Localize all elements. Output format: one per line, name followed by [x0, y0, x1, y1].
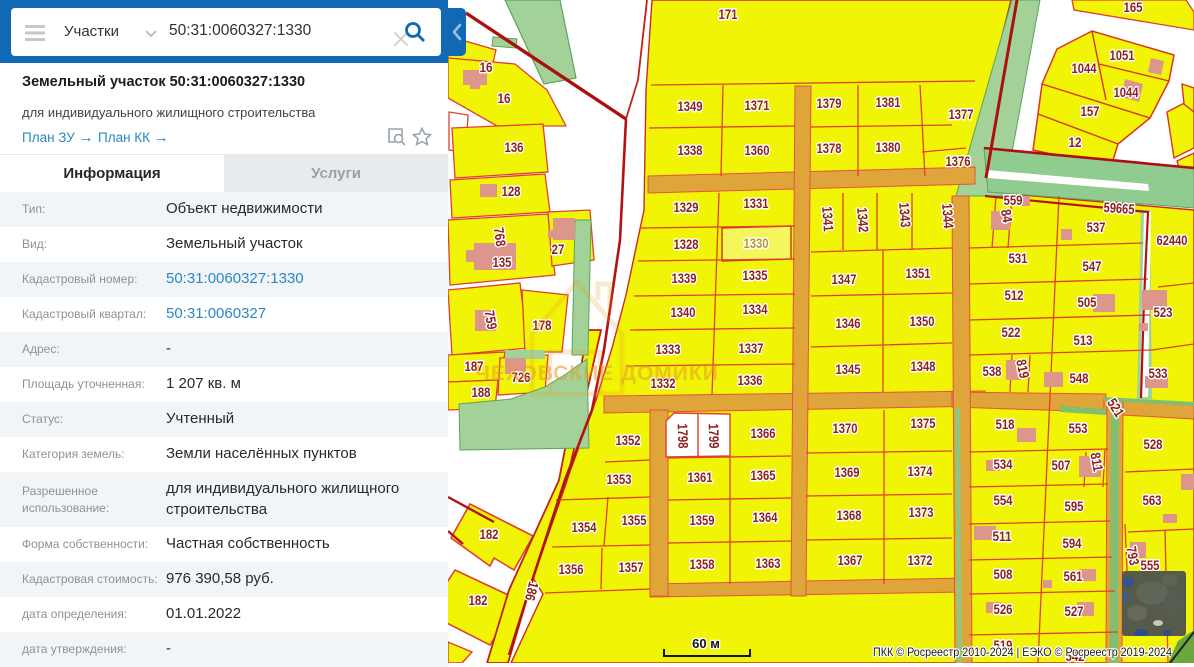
svg-text:1334: 1334	[743, 301, 768, 317]
svg-text:1379: 1379	[817, 95, 842, 111]
svg-text:1353: 1353	[607, 471, 632, 487]
svg-text:1328: 1328	[674, 236, 699, 252]
svg-text:1370: 1370	[833, 420, 858, 436]
svg-text:1051: 1051	[1110, 47, 1135, 63]
svg-text:1044: 1044	[1114, 84, 1139, 100]
svg-text:594: 594	[1063, 535, 1082, 551]
svg-text:528: 528	[1144, 436, 1163, 452]
svg-text:1374: 1374	[908, 463, 933, 479]
svg-text:523: 523	[1154, 304, 1173, 320]
svg-text:811: 811	[1087, 451, 1106, 473]
svg-text:59665: 59665	[1103, 199, 1135, 217]
svg-text:595: 595	[1065, 498, 1084, 514]
svg-text:563: 563	[1143, 492, 1162, 508]
svg-text:1333: 1333	[656, 341, 681, 357]
svg-text:1373: 1373	[909, 504, 934, 520]
svg-text:1352: 1352	[616, 432, 641, 448]
svg-text:16: 16	[480, 59, 493, 75]
svg-text:157: 157	[1081, 103, 1100, 119]
svg-text:171: 171	[719, 6, 738, 22]
svg-text:1349: 1349	[678, 98, 703, 114]
svg-text:1377: 1377	[949, 106, 974, 122]
svg-text:527: 527	[1065, 603, 1084, 619]
svg-text:526: 526	[994, 601, 1013, 617]
svg-text:1044: 1044	[1072, 60, 1097, 76]
svg-text:553: 553	[1069, 420, 1088, 436]
svg-text:505: 505	[1078, 294, 1097, 310]
svg-text:1342: 1342	[854, 207, 872, 233]
svg-text:531: 531	[1009, 250, 1028, 266]
svg-text:1359: 1359	[690, 512, 715, 528]
svg-text:182: 182	[480, 526, 499, 542]
svg-text:128: 128	[502, 183, 521, 199]
svg-text:522: 522	[1002, 324, 1021, 340]
svg-text:1356: 1356	[559, 561, 584, 577]
svg-text:1348: 1348	[911, 358, 936, 374]
svg-text:1375: 1375	[911, 415, 936, 431]
svg-text:511: 511	[993, 528, 1012, 544]
svg-text:1355: 1355	[622, 512, 647, 528]
svg-text:1344: 1344	[939, 203, 957, 229]
svg-text:1339: 1339	[672, 270, 697, 286]
svg-text:27: 27	[552, 241, 565, 257]
svg-text:518: 518	[996, 416, 1015, 432]
svg-text:188: 188	[472, 384, 491, 400]
svg-text:1380: 1380	[876, 139, 901, 155]
svg-text:182: 182	[469, 592, 488, 608]
svg-text:ПКК © Росреестр 2010-2024 | ЕЭ: ПКК © Росреестр 2010-2024 | ЕЭКО © Росре…	[873, 645, 1172, 659]
svg-text:1369: 1369	[835, 464, 860, 480]
svg-text:1799: 1799	[706, 423, 723, 449]
svg-text:507: 507	[1052, 457, 1071, 473]
svg-text:1363: 1363	[756, 555, 781, 571]
svg-text:534: 534	[994, 456, 1013, 472]
svg-text:1345: 1345	[836, 361, 861, 377]
svg-text:1347: 1347	[832, 271, 857, 287]
svg-text:1330: 1330	[744, 235, 769, 251]
svg-text:1358: 1358	[690, 556, 715, 572]
svg-text:165: 165	[1124, 0, 1143, 15]
svg-text:1798: 1798	[675, 423, 692, 449]
svg-text:ЧЕХОВСКИЕ ДОМИКИ: ЧЕХОВСКИЕ ДОМИКИ	[475, 362, 719, 385]
svg-text:768: 768	[491, 226, 510, 247]
svg-text:62440: 62440	[1157, 232, 1188, 248]
svg-text:1346: 1346	[836, 315, 861, 331]
svg-text:1372: 1372	[908, 552, 933, 568]
svg-text:1360: 1360	[745, 142, 770, 158]
svg-text:1340: 1340	[671, 304, 696, 320]
svg-text:537: 537	[1087, 219, 1106, 235]
svg-text:1331: 1331	[744, 195, 769, 211]
svg-text:508: 508	[994, 566, 1013, 582]
svg-text:136: 136	[505, 139, 524, 155]
svg-text:1335: 1335	[743, 267, 768, 283]
svg-text:538: 538	[983, 363, 1002, 379]
svg-text:1337: 1337	[739, 340, 764, 356]
svg-text:513: 513	[1074, 332, 1093, 348]
svg-text:1361: 1361	[688, 469, 713, 485]
svg-text:1351: 1351	[906, 265, 931, 281]
svg-text:1367: 1367	[838, 552, 863, 568]
svg-text:1368: 1368	[837, 507, 862, 523]
svg-text:1364: 1364	[753, 509, 778, 525]
svg-text:759: 759	[481, 309, 500, 331]
svg-text:1338: 1338	[678, 142, 703, 158]
svg-text:554: 554	[994, 492, 1013, 508]
svg-text:547: 547	[1083, 258, 1102, 274]
svg-text:1343: 1343	[896, 202, 914, 228]
svg-text:1357: 1357	[619, 559, 644, 575]
svg-text:1366: 1366	[751, 425, 776, 441]
svg-text:60 м: 60 м	[692, 636, 720, 651]
svg-text:16: 16	[498, 90, 511, 106]
svg-text:135: 135	[493, 254, 512, 270]
svg-text:1341: 1341	[819, 206, 837, 232]
svg-text:12: 12	[1069, 134, 1082, 150]
svg-text:533: 533	[1149, 365, 1168, 381]
svg-text:548: 548	[1070, 370, 1089, 386]
svg-text:1354: 1354	[572, 519, 597, 535]
svg-text:1381: 1381	[876, 94, 901, 110]
svg-text:555: 555	[1141, 557, 1160, 573]
svg-text:1365: 1365	[751, 467, 776, 483]
svg-text:1376: 1376	[946, 153, 971, 169]
svg-text:1350: 1350	[910, 313, 935, 329]
svg-text:1371: 1371	[745, 97, 770, 113]
svg-text:561: 561	[1064, 568, 1083, 584]
svg-text:1329: 1329	[674, 199, 699, 215]
svg-text:559: 559	[1004, 192, 1023, 208]
svg-text:1378: 1378	[817, 140, 842, 156]
svg-text:512: 512	[1005, 287, 1024, 303]
svg-text:1336: 1336	[738, 372, 763, 388]
